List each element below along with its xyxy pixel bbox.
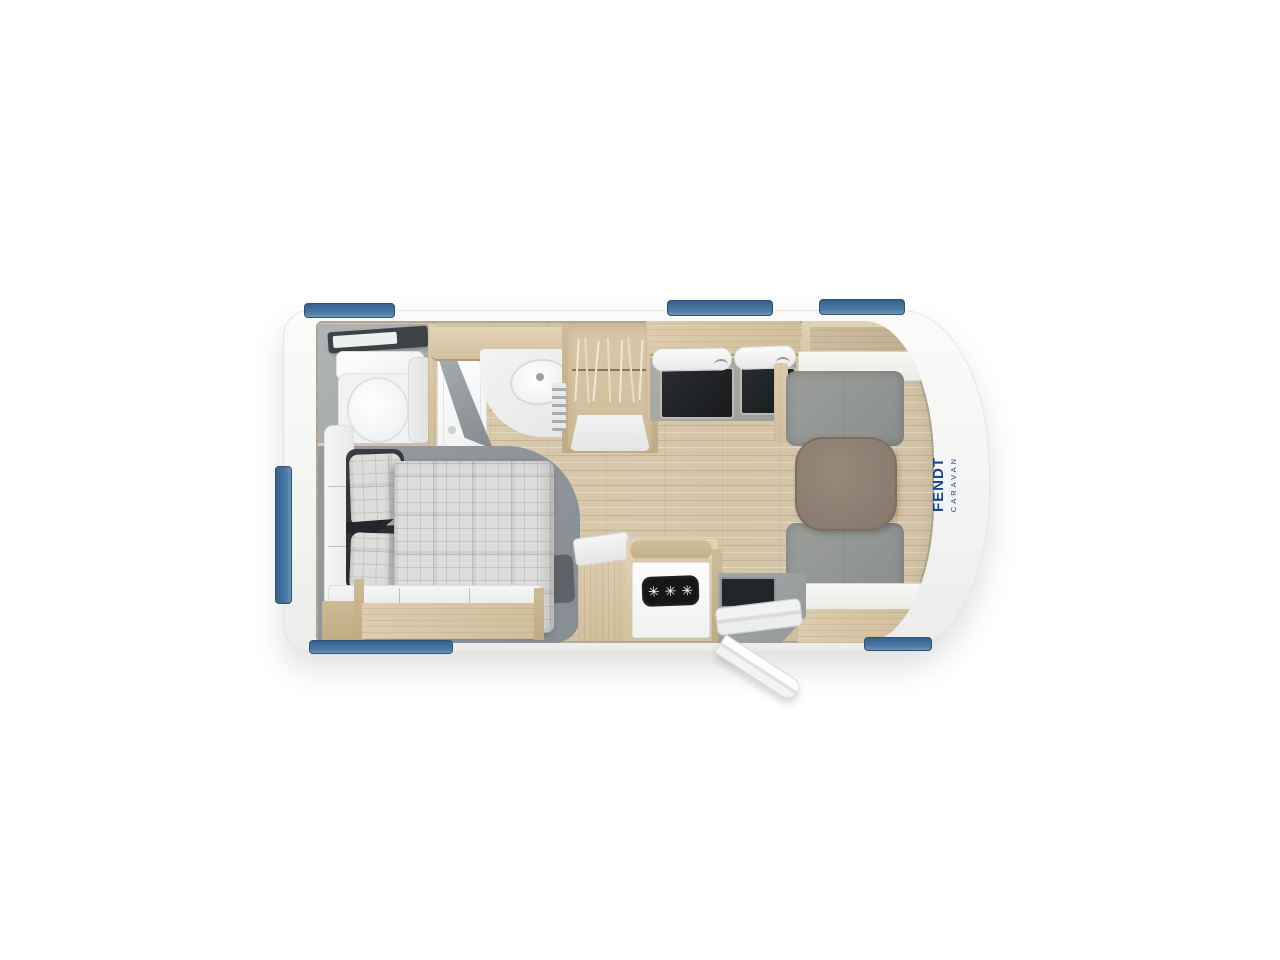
window-rear-side <box>275 466 292 604</box>
shower-drain <box>448 426 456 434</box>
wardrobe <box>562 323 658 453</box>
fendt-label: FENDT <box>930 457 947 512</box>
wardrobe-drawer <box>570 415 650 451</box>
window-bottom-rear <box>309 640 453 654</box>
brand-logo: FENDT CARAVAN <box>930 446 968 522</box>
kitchen-sink-recess <box>660 367 734 419</box>
stove-top-ledge <box>630 540 712 560</box>
roof-hatch-glass <box>333 332 398 348</box>
hob-panel: ✳ ✳ ✳ <box>641 575 699 607</box>
hanger <box>619 340 623 402</box>
hanger <box>592 341 599 401</box>
burner-symbol: ✳ <box>648 584 660 598</box>
burner-symbol: ✳ <box>681 583 693 597</box>
stove-unit: ✳ ✳ ✳ <box>626 539 718 641</box>
faucet-dot <box>536 373 544 381</box>
window-top-middle <box>667 300 773 316</box>
caravan-label: CARAVAN <box>949 456 958 512</box>
toilet-seat <box>347 377 409 443</box>
bed-frame-board <box>362 603 540 639</box>
burner-symbol: ✳ <box>664 584 676 598</box>
bed-frame-end <box>534 588 544 640</box>
caravan-floorplan: ✳ ✳ ✳ <box>0 0 1280 960</box>
window-top-rear <box>304 303 395 318</box>
front-end-overlay <box>860 300 1110 670</box>
cushion-seam <box>844 375 845 442</box>
bed-corner-wedge <box>322 601 354 641</box>
faucet-arc <box>714 359 728 371</box>
kitchen-cabinet-left <box>578 553 626 641</box>
shelf-rack <box>552 383 566 431</box>
interior-floor: ✳ ✳ ✳ <box>316 321 934 643</box>
